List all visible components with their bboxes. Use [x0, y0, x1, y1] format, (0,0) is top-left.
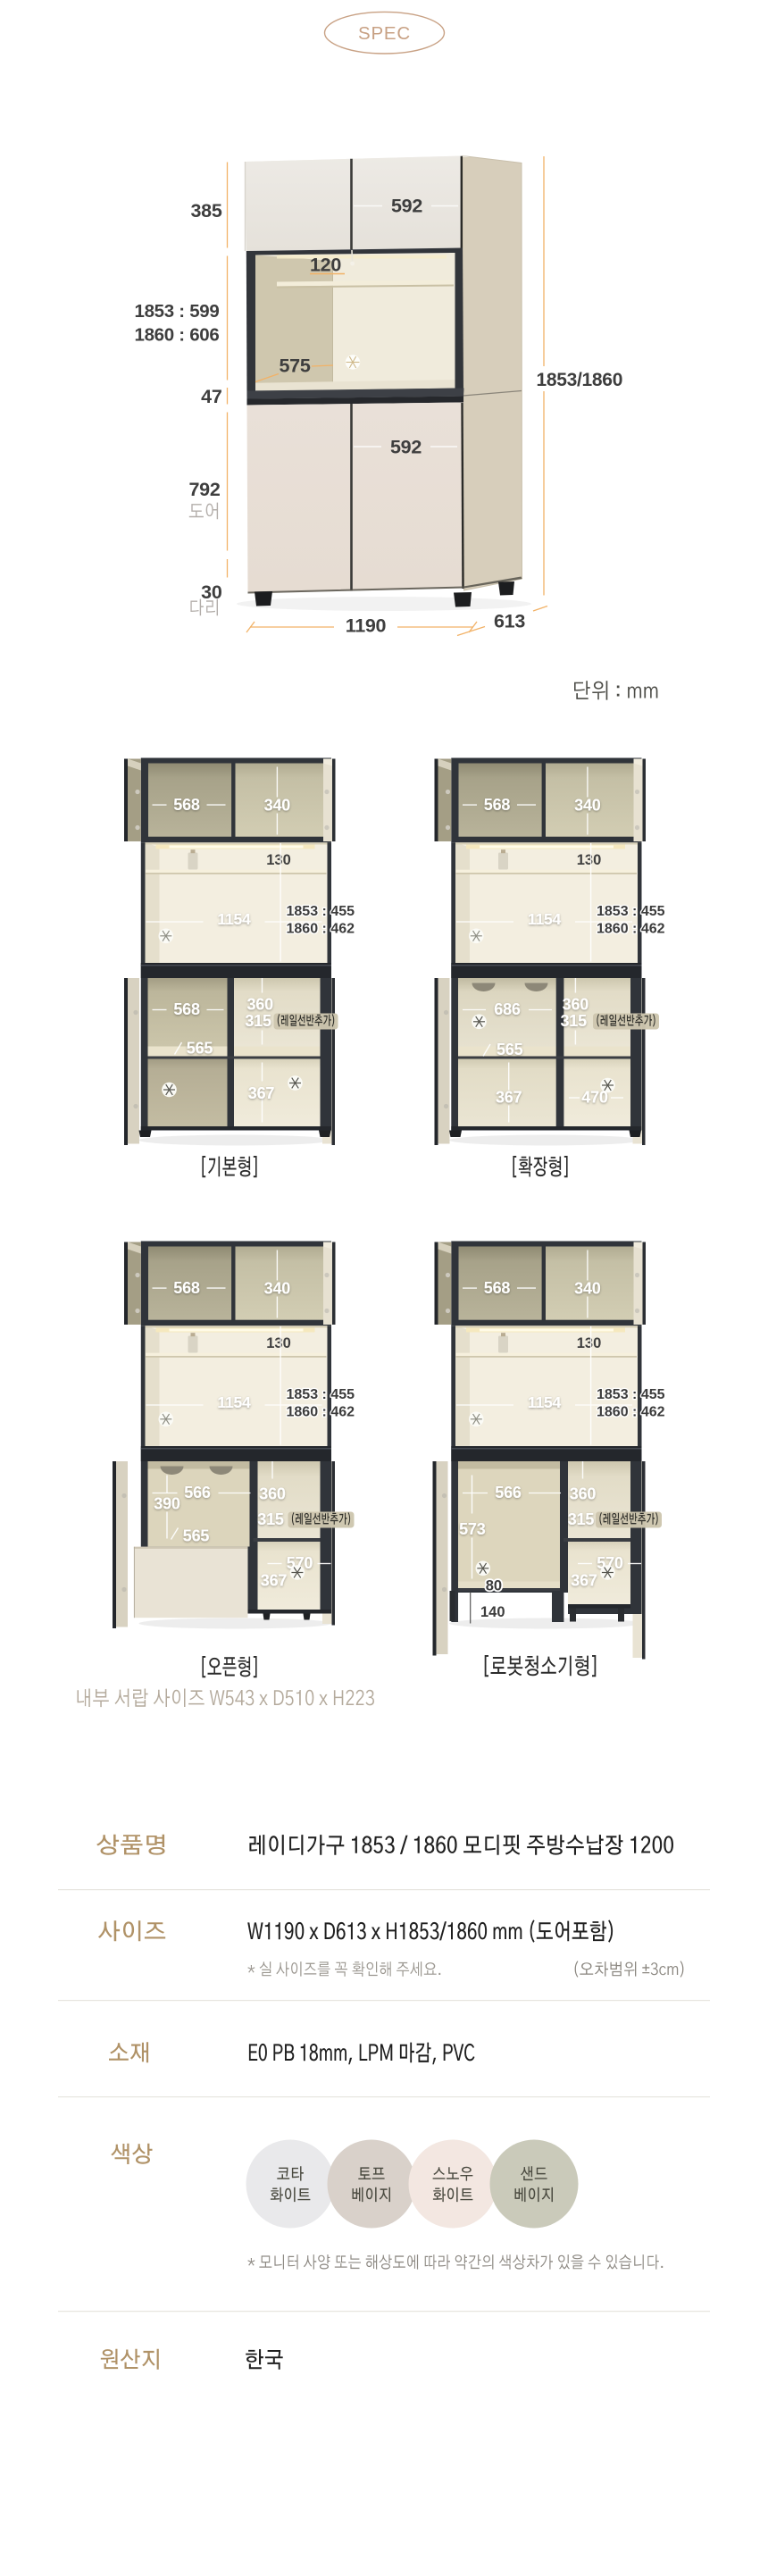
svg-text:1853 : 455: 1853 : 455 [287, 904, 355, 919]
svg-text:30: 30 [201, 581, 222, 603]
svg-text:340: 340 [264, 1279, 291, 1297]
svg-text:1853/1860: 1853/1860 [537, 370, 623, 390]
svg-text:130: 130 [577, 1335, 602, 1351]
svg-text:47: 47 [201, 386, 222, 407]
svg-text:1860 : 462: 1860 : 462 [287, 1405, 355, 1420]
svg-text:1853 : 455: 1853 : 455 [597, 904, 665, 919]
svg-text:315: 315 [560, 1012, 587, 1030]
svg-text:367: 367 [496, 1089, 522, 1107]
svg-text:1154: 1154 [217, 1393, 251, 1411]
svg-text:1860 : 462: 1860 : 462 [597, 1405, 665, 1420]
svg-text:1853 : 455: 1853 : 455 [597, 1387, 665, 1402]
svg-text:360: 360 [259, 1485, 286, 1503]
svg-text:367: 367 [571, 1571, 597, 1589]
svg-text:565: 565 [497, 1041, 523, 1058]
svg-text:792: 792 [189, 479, 221, 500]
svg-text:568: 568 [173, 1279, 200, 1297]
svg-text:592: 592 [390, 437, 422, 458]
svg-text:120: 120 [310, 255, 341, 276]
svg-text:568: 568 [484, 1279, 511, 1297]
svg-text:566: 566 [495, 1484, 522, 1501]
svg-text:130: 130 [266, 852, 291, 868]
svg-text:385: 385 [191, 200, 222, 222]
svg-text:1853 : 455: 1853 : 455 [287, 1387, 355, 1402]
svg-text:80: 80 [486, 1578, 502, 1594]
svg-text:SPEC: SPEC [358, 23, 411, 44]
svg-text:340: 340 [264, 796, 291, 814]
svg-text:340: 340 [574, 1279, 601, 1297]
svg-text:568: 568 [173, 1000, 200, 1018]
svg-text:568: 568 [484, 796, 511, 814]
svg-text:1154: 1154 [217, 910, 251, 928]
svg-text:367: 367 [248, 1084, 275, 1102]
svg-text:1853 : 599: 1853 : 599 [134, 301, 219, 322]
svg-text:1154: 1154 [528, 1393, 562, 1411]
svg-text:566: 566 [184, 1484, 211, 1501]
svg-text:140: 140 [480, 1604, 505, 1620]
svg-text:315: 315 [245, 1012, 271, 1030]
svg-text:592: 592 [391, 196, 422, 217]
svg-text:1860 : 462: 1860 : 462 [597, 922, 665, 937]
svg-text:575: 575 [280, 355, 311, 377]
svg-text:1154: 1154 [528, 910, 562, 928]
svg-text:568: 568 [173, 796, 200, 814]
svg-text:565: 565 [183, 1527, 210, 1545]
svg-text:367: 367 [261, 1571, 288, 1589]
svg-text:686: 686 [494, 1000, 521, 1018]
svg-text:130: 130 [577, 852, 602, 868]
svg-text:340: 340 [574, 796, 601, 814]
svg-text:1190: 1190 [346, 615, 387, 637]
svg-text:1860 : 606: 1860 : 606 [134, 325, 219, 346]
svg-text:360: 360 [563, 996, 589, 1014]
svg-text:360: 360 [246, 996, 273, 1014]
svg-text:573: 573 [459, 1520, 486, 1538]
svg-text:390: 390 [154, 1495, 180, 1513]
svg-text:1860 : 462: 1860 : 462 [287, 922, 355, 937]
svg-text:130: 130 [266, 1335, 291, 1351]
svg-text:565: 565 [187, 1040, 213, 1058]
svg-text:315: 315 [257, 1510, 284, 1528]
svg-text:360: 360 [570, 1485, 597, 1503]
svg-text:315: 315 [568, 1510, 595, 1528]
svg-text:613: 613 [494, 611, 525, 632]
